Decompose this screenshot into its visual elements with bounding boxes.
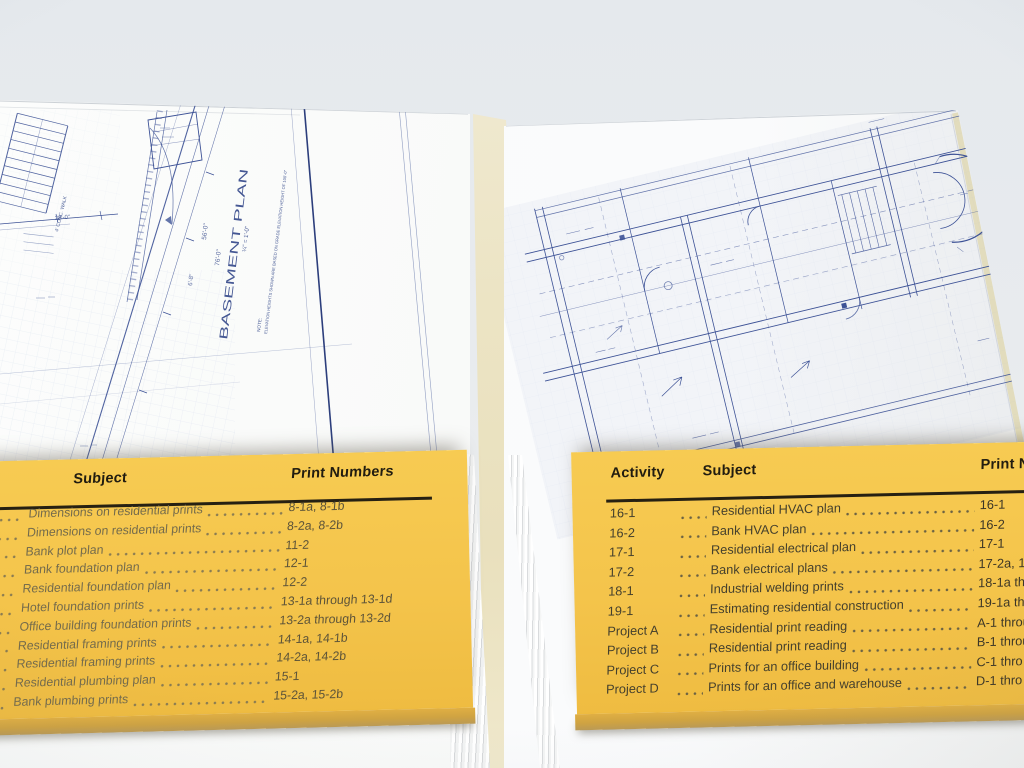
leader-dots xyxy=(864,665,972,673)
print-numbers-cell: 17-2a, 17-2 xyxy=(978,553,1024,571)
right-index-card: Activity Subject Print Numb 16-1Resident… xyxy=(571,440,1024,715)
print-numbers-cell: 13-2a through 13-2d xyxy=(279,609,430,627)
print-numbers-cell: 11-2 xyxy=(285,534,436,552)
leader-dots xyxy=(0,535,22,542)
print-numbers-cell: D-1 thro xyxy=(976,670,1024,688)
leader-dots xyxy=(144,567,279,576)
print-numbers-cell: 8-2a, 8-2b xyxy=(286,515,437,533)
leader-dots xyxy=(175,585,277,593)
leader-dots xyxy=(677,671,703,678)
leader-dots xyxy=(133,698,269,707)
leader-dots xyxy=(0,592,17,599)
note-text: ELEVATION HEIGHTS SHOWN ARE BASED ON GRA… xyxy=(263,169,288,334)
leader-dots xyxy=(909,606,973,613)
subject-cell: Residential plumbing plan xyxy=(14,673,156,690)
subject-cell: Estimating residential construction xyxy=(710,597,904,616)
subject-cell: Bank foundation plan xyxy=(24,560,141,577)
leader-dots xyxy=(678,651,704,658)
print-numbers-cell: 18-1a throu xyxy=(978,572,1024,590)
print-numbers-cell: 14-1a, 14-1b xyxy=(277,628,428,646)
print-numbers-cell: C-1 thro xyxy=(976,651,1024,669)
print-numbers-cell: 15-1 xyxy=(274,666,425,684)
leader-dots xyxy=(160,680,270,689)
subject-header: Subject xyxy=(702,462,756,479)
print-numbers-header: Print Numbers xyxy=(291,462,442,482)
leader-dots xyxy=(0,667,11,674)
subject-cell: Residential HVAC plan xyxy=(712,500,841,518)
print-numbers-cell: 12-2 xyxy=(282,572,433,590)
leader-dots xyxy=(0,516,23,523)
leader-dots xyxy=(677,690,703,697)
leader-dots xyxy=(681,514,707,521)
subject-cell: Bank plumbing prints xyxy=(13,692,129,709)
activity-cell: Project D xyxy=(606,680,672,697)
print-numbers-cell: 16-1 xyxy=(980,494,1024,512)
dim-label: 76'-0" xyxy=(214,248,223,266)
note-label: NOTE: xyxy=(256,318,263,333)
leader-dots xyxy=(196,623,274,631)
leader-dots xyxy=(0,648,13,655)
print-numbers-cell: 19-1a thro xyxy=(977,592,1024,610)
leader-dots xyxy=(0,611,16,618)
print-numbers-header: Print Numb xyxy=(980,454,1024,473)
subject-cell: Bank plot plan xyxy=(25,542,104,558)
subject-cell: Prints for an office building xyxy=(708,657,859,675)
subject-cell: Hotel foundation prints xyxy=(20,598,144,615)
leader-dots xyxy=(0,705,8,712)
activity-cell: 16-1 xyxy=(610,504,676,521)
leader-dots xyxy=(159,661,271,670)
print-numbers-cell: 12-1 xyxy=(283,553,434,571)
activity-cell: 19-1 xyxy=(608,602,674,619)
leader-dots xyxy=(907,684,971,691)
dim-label: 56'-0" xyxy=(201,222,210,240)
leader-dots xyxy=(0,554,20,561)
subject-header: Subject xyxy=(73,470,128,487)
activity-cell: Project A xyxy=(607,622,673,639)
leader-dots xyxy=(0,573,19,580)
subject-cell: Industrial welding prints xyxy=(710,579,844,597)
leader-dots xyxy=(207,510,283,518)
leader-dots xyxy=(680,553,706,560)
photo-canvas: BASEMENT PLAN ¼" = 1'-0" NOTE: ELEVATION… xyxy=(0,0,1024,768)
subject-cell: Bank electrical plans xyxy=(710,559,828,577)
print-numbers-cell: 17-1 xyxy=(979,533,1024,551)
activity-cell: Project B xyxy=(607,641,673,658)
activity-header: Activity xyxy=(610,463,702,481)
subject-cell: Residential framing prints xyxy=(17,635,157,652)
print-numbers-cell: 14-2a, 14-2b xyxy=(276,647,427,665)
leader-dots xyxy=(0,686,10,693)
leader-dots xyxy=(148,604,275,613)
subject-cell: Bank HVAC plan xyxy=(711,521,806,538)
leader-dots xyxy=(852,625,972,634)
subject-cell: Residential print reading xyxy=(709,618,847,636)
print-numbers-cell: B-1 throu xyxy=(977,631,1024,649)
leader-dots xyxy=(852,645,972,654)
print-numbers-cell: 13-1a through 13-1d xyxy=(280,591,431,609)
print-numbers-cell: 16-2 xyxy=(979,513,1024,531)
leader-dots xyxy=(679,612,705,619)
leader-dots xyxy=(833,567,974,576)
subject-cell: Prints for an office and warehouse xyxy=(708,675,902,694)
subject-cell: Dimensions on residential prints xyxy=(28,502,203,520)
activity-cell: 18-1 xyxy=(608,582,674,599)
print-numbers-cell: 8-1a, 8-1b xyxy=(288,496,439,514)
subject-cell: Residential framing prints xyxy=(16,654,156,671)
activity-cell: Project C xyxy=(606,661,672,678)
leader-dots xyxy=(678,632,704,639)
subject-cell: Office building foundation prints xyxy=(19,615,192,633)
activity-cell: 17-2 xyxy=(608,563,674,580)
activity-cell: 17-1 xyxy=(609,543,675,560)
subject-cell: Residential print reading xyxy=(709,637,847,655)
print-numbers-cell: 15-2a, 15-2b xyxy=(273,685,424,703)
leader-dots xyxy=(161,642,273,651)
print-numbers-cell: A-1 throu xyxy=(977,611,1024,629)
leader-dots xyxy=(849,586,973,595)
activity-cell: 16-2 xyxy=(609,524,675,541)
subject-cell: Residential electrical plan xyxy=(711,539,856,557)
leader-dots xyxy=(0,629,14,636)
leader-dots xyxy=(846,508,975,517)
subject-cell: Dimensions on residential prints xyxy=(27,521,202,539)
leader-dots xyxy=(206,529,282,537)
leader-dots xyxy=(861,547,974,556)
leader-dots xyxy=(680,534,706,541)
leader-dots xyxy=(811,527,974,537)
leader-dots xyxy=(679,592,705,599)
leader-dots xyxy=(679,573,705,580)
subject-cell: Residential foundation plan xyxy=(22,578,171,596)
left-index-card: Subject Print Numbers Dimensions on resi… xyxy=(0,450,473,720)
